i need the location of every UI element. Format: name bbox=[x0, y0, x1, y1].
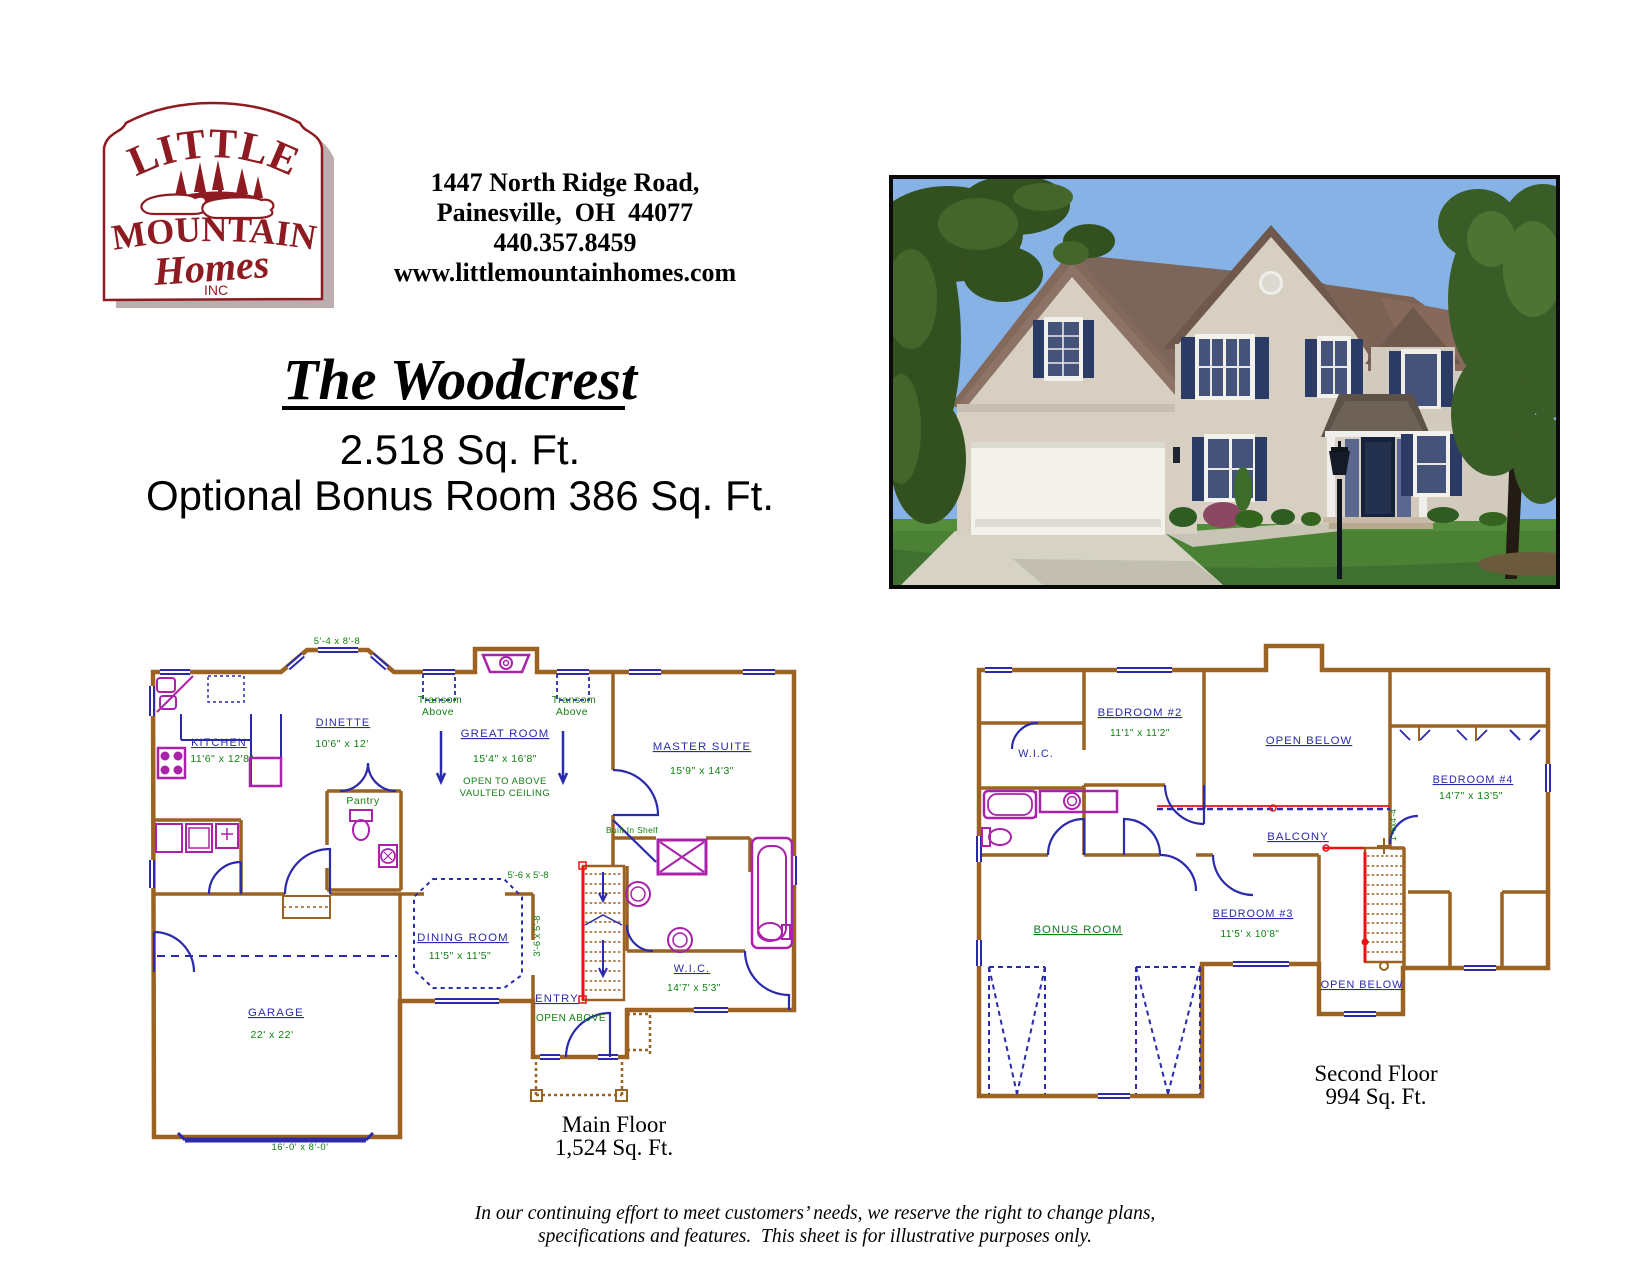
svg-text:DINING ROOM: DINING ROOM bbox=[417, 932, 509, 944]
svg-text:5'-6 x 5'-8: 5'-6 x 5'-8 bbox=[507, 870, 548, 881]
svg-text:Built In Shelf: Built In Shelf bbox=[606, 825, 658, 835]
svg-text:BEDROOM #3: BEDROOM #3 bbox=[1213, 908, 1294, 920]
svg-text:W.I.C.: W.I.C. bbox=[674, 963, 711, 975]
svg-text:Transom: Transom bbox=[418, 694, 463, 706]
svg-text:1'-6x4'-4: 1'-6x4'-4 bbox=[1388, 809, 1398, 841]
svg-text:5'-4 x 8'-8: 5'-4 x 8'-8 bbox=[314, 636, 361, 647]
svg-text:11'1" x 11'2": 11'1" x 11'2" bbox=[1110, 728, 1170, 739]
svg-text:15'9" x 14'3": 15'9" x 14'3" bbox=[670, 765, 734, 777]
svg-text:BALCONY: BALCONY bbox=[1267, 831, 1328, 843]
svg-text:OPEN BELOW: OPEN BELOW bbox=[1321, 979, 1404, 991]
svg-text:14'7" x 13'5": 14'7" x 13'5" bbox=[1439, 790, 1503, 802]
svg-text:GARAGE: GARAGE bbox=[248, 1007, 304, 1019]
svg-text:22' x 22': 22' x 22' bbox=[251, 1029, 294, 1041]
svg-text:10'6" x 12': 10'6" x 12' bbox=[315, 738, 369, 750]
svg-text:15'4" x 16'8": 15'4" x 16'8" bbox=[473, 753, 537, 765]
svg-text:INC: INC bbox=[204, 282, 228, 298]
svg-text:BEDROOM #4: BEDROOM #4 bbox=[1433, 774, 1514, 786]
svg-text:11'6" x 12'8": 11'6" x 12'8" bbox=[190, 753, 253, 765]
svg-text:Above: Above bbox=[556, 706, 588, 718]
svg-text:BONUS ROOM: BONUS ROOM bbox=[1033, 924, 1122, 936]
svg-text:11'5' x 10'8": 11'5' x 10'8" bbox=[1221, 929, 1280, 940]
svg-text:W.I.C.: W.I.C. bbox=[1018, 748, 1053, 760]
svg-text:ENTRY: ENTRY bbox=[535, 993, 579, 1005]
svg-text:KITCHEN: KITCHEN bbox=[191, 737, 247, 749]
svg-text:Transom: Transom bbox=[552, 694, 597, 706]
svg-text:GREAT ROOM: GREAT ROOM bbox=[461, 728, 550, 740]
svg-text:OPEN ABOVE: OPEN ABOVE bbox=[536, 1013, 606, 1024]
svg-text:Pantry: Pantry bbox=[346, 795, 380, 807]
svg-text:DINETTE: DINETTE bbox=[316, 717, 371, 729]
svg-text:11'5" x 11'5": 11'5" x 11'5" bbox=[429, 950, 492, 962]
svg-text:BEDROOM #2: BEDROOM #2 bbox=[1098, 707, 1183, 719]
svg-text:OPEN TO ABOVE: OPEN TO ABOVE bbox=[463, 776, 547, 787]
svg-text:VAULTED CEILING: VAULTED CEILING bbox=[460, 788, 551, 799]
svg-text:16'-0' x 8'-0': 16'-0' x 8'-0' bbox=[271, 1142, 328, 1153]
svg-text:14'7' x 5'3": 14'7' x 5'3" bbox=[667, 983, 721, 994]
svg-text:MASTER SUITE: MASTER SUITE bbox=[653, 741, 752, 753]
svg-text:3'-6 x 5'-8: 3'-6 x 5'-8 bbox=[532, 915, 543, 956]
svg-text:OPEN BELOW: OPEN BELOW bbox=[1266, 735, 1353, 747]
svg-text:Above: Above bbox=[422, 706, 454, 718]
